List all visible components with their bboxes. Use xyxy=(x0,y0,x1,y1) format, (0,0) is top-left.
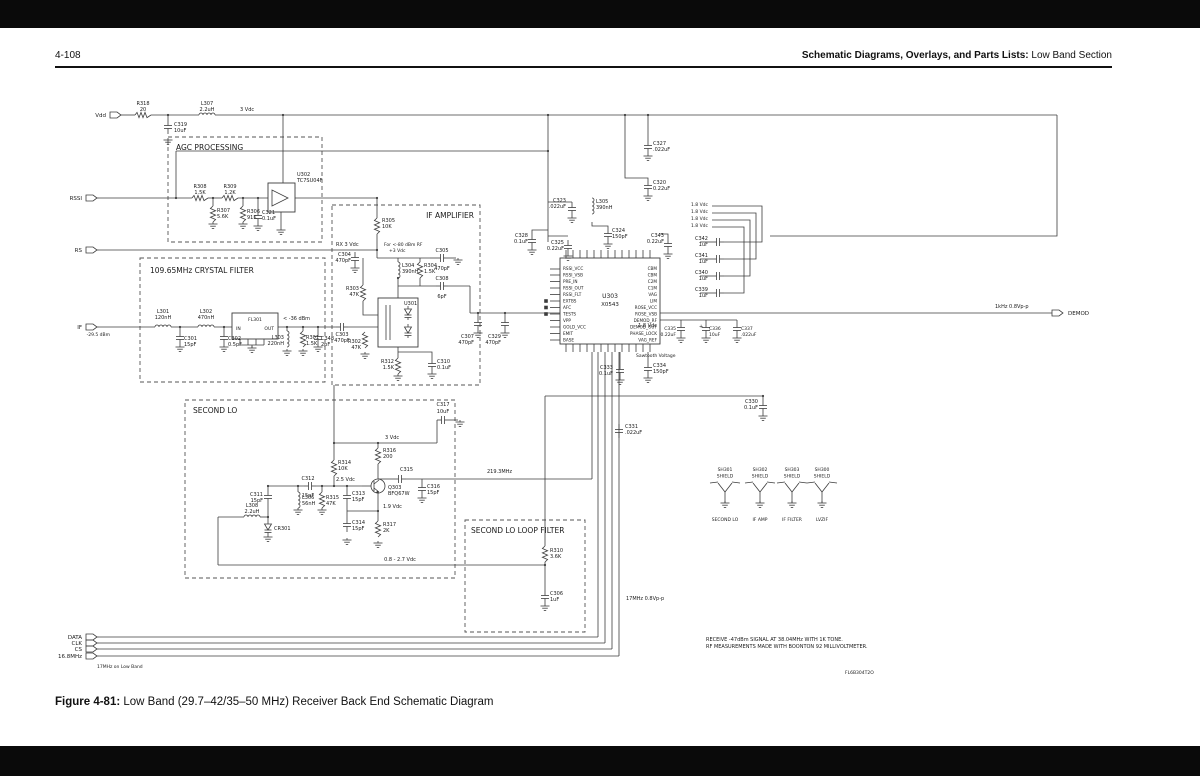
schematic-label: 47K xyxy=(349,292,359,298)
schematic-label: SHIELD xyxy=(814,474,831,480)
schematic-label: 0.1uF xyxy=(437,365,451,371)
schematic-label: 120nH xyxy=(155,315,172,321)
shield-symbols: SH301SHIELDSECOND LOSH302SHIELDIF AMPSH3… xyxy=(710,467,837,523)
schematic-label: IF AMPLIFIER xyxy=(426,211,474,220)
schematic-label: SHIELD xyxy=(784,474,801,480)
schematic-label: 1.8 Vdc xyxy=(638,323,657,329)
schematic-label: PRE_IN xyxy=(563,279,578,284)
schematic-label: 16.8MHz xyxy=(58,654,82,660)
drawing-code: FL6B304T2O xyxy=(845,670,874,676)
schematic-label: EXTBS xyxy=(563,299,577,304)
schematic-label: C336 xyxy=(709,326,721,332)
schematic-label: SHIELD xyxy=(717,474,734,480)
schematic-label: C315 xyxy=(400,467,413,473)
schematic-label: 1uF xyxy=(699,259,708,265)
schematic-label: 470pF xyxy=(434,266,450,272)
schematic-label: 17MHz 0.8Vp-p xyxy=(626,596,664,602)
schematic-label: 109.65MHz CRYSTAL FILTER xyxy=(150,266,254,275)
ic-u303: RSSI_VCCRSSI_VSBPRE_INRSSI_OUTRSSI_FLTEX… xyxy=(560,250,660,352)
schematic-label: CS xyxy=(75,647,83,653)
schematic-label: SH302 xyxy=(753,467,768,473)
figure-caption-number: Figure 4-81: xyxy=(55,696,120,708)
schematic-label: AFC xyxy=(563,305,571,310)
figure-caption: Figure 4-81: Low Band (29.7–42/35–50 MHz… xyxy=(55,696,493,708)
schematic-label: 2.2uH xyxy=(200,107,215,113)
schematic-label: IF FILTER xyxy=(782,517,802,523)
schematic-label: .022uF xyxy=(741,332,757,338)
schematic-label: RSSI xyxy=(70,196,83,202)
schematic-label: 390nH xyxy=(596,205,613,211)
schematic-label: C308 xyxy=(435,276,448,282)
schematic-label: C337 xyxy=(741,326,753,332)
schematic-label: SH301 xyxy=(718,467,733,473)
schematic-label: 10uF xyxy=(709,332,721,338)
schematic-label: FL301 xyxy=(248,317,262,323)
schematic-label: .022uF xyxy=(653,147,670,153)
blocks: AGC PROCESSINGIF AMPLIFIER109.65MHz CRYS… xyxy=(140,137,585,632)
schematic-label: VAG xyxy=(648,292,657,297)
schematic-label: 470pF xyxy=(335,258,351,264)
schematic-label: 15pF xyxy=(352,497,365,503)
schematic-label: RSSI_OUT xyxy=(563,286,584,291)
schematic-label: Vdd xyxy=(95,113,106,119)
schematic-label: 2.5 Vdc xyxy=(336,477,355,483)
schematic-label: C335 xyxy=(664,326,676,332)
schematic-label: 17MHz on Low Band xyxy=(97,664,143,670)
wires xyxy=(99,115,1057,656)
schematic-label: 47K xyxy=(351,345,361,351)
schematic-label: BASE xyxy=(563,338,574,343)
schematic-label: .022uF xyxy=(625,430,642,436)
schematic-label: +3 Vdc xyxy=(389,248,406,254)
schematic-label: 0.8 - 2.7 Vdc xyxy=(384,557,416,563)
schematic-label: C317 xyxy=(436,402,449,408)
schematic-label: 219.3MHz xyxy=(487,469,512,475)
schematic-label: 2K xyxy=(383,528,390,534)
schematic-label: X0543 xyxy=(601,302,619,308)
schematic-label: 0.1uF xyxy=(744,405,758,411)
schematic-label: RX 3 Vdc xyxy=(336,242,359,248)
schematic-label: 1uF xyxy=(699,276,708,282)
schematic-label: 15pF xyxy=(184,342,197,348)
schematic-label: U301 xyxy=(404,301,417,307)
schematic-label: 10K xyxy=(338,466,348,472)
schematic-label: IF xyxy=(77,325,82,331)
schematic-label: 6pF xyxy=(437,294,446,300)
schematic-label: 200 xyxy=(383,454,393,460)
schematic-label: RS xyxy=(75,248,83,254)
schematic-label: RSSI_VSB xyxy=(563,273,583,278)
schematic-label: 470pF xyxy=(485,340,501,346)
schematic-label: C2M xyxy=(648,279,658,284)
schematic-label: SH303 xyxy=(785,467,800,473)
schematic-label: 470pF xyxy=(458,340,474,346)
schematic-label: 470nH xyxy=(198,315,215,321)
note-line: RF MEASUREMENTS MADE WITH BOONTON 92 MIL… xyxy=(706,644,868,650)
schematic-label: SECOND LO xyxy=(712,517,739,523)
manual-page: 4-108 Schematic Diagrams, Overlays, and … xyxy=(0,0,1200,776)
schematic-label: 1uF xyxy=(699,293,708,299)
schematic-label: 1.8 Vdc xyxy=(691,202,709,208)
schematic-label: 1.5K xyxy=(194,190,206,196)
schematic-label: CR301 xyxy=(274,526,291,532)
schematic-label: RSSI_FLT xyxy=(563,292,582,297)
schematic-label: Sawtooth Voltage xyxy=(636,353,676,359)
schematic-label: 2pF xyxy=(321,342,330,348)
schematic-label: 0.22uF xyxy=(653,186,670,192)
schematic-label: 10uF xyxy=(174,128,187,134)
schematic-label: IN xyxy=(236,326,241,332)
schematic-label: SH300 xyxy=(815,467,830,473)
schematic-label: 15pF xyxy=(427,490,440,496)
schematic-label: 150pF xyxy=(612,234,628,240)
connectors: VddRSSIRSIF-29.5 dBmDATACLKCS16.8MHzDEMO… xyxy=(58,112,1089,660)
schematic-label: For <-80 dBm RF xyxy=(384,242,423,248)
schematic-label: OUT xyxy=(264,326,274,332)
schematic-label: 3 Vdc xyxy=(240,107,254,113)
schematic-label: 1uF xyxy=(699,242,708,248)
schematic-label: BFQ67W xyxy=(388,491,410,497)
schematic-label: LVZIF xyxy=(816,517,829,523)
labels: R31820L3072.2uH3 VdcC31910uFR3081.5KR309… xyxy=(97,101,1029,670)
schematic-label: VPP xyxy=(563,318,571,323)
notes: RECEIVE -47dBm SIGNAL AT 38.04MHz WITH 1… xyxy=(706,637,874,676)
schematic-label: 1.9 Vdc xyxy=(383,504,402,510)
schematic-label: 3 Vdc xyxy=(385,435,399,441)
schematic-label: C1M xyxy=(648,286,658,291)
schematic-label: 47K xyxy=(326,501,336,507)
schematic-label: 56nH xyxy=(302,501,316,507)
schematic-label: C312 xyxy=(301,476,314,482)
block-outline xyxy=(465,520,585,632)
schematic-label: 1.8 Vdc xyxy=(691,216,709,222)
schematic-label: 20 xyxy=(140,107,146,113)
schematic-label: 10uF xyxy=(437,409,450,415)
schematic-label: VAG_REF xyxy=(638,338,657,343)
schematic-label: 0.1uF xyxy=(599,371,613,377)
schematic-label: 91K xyxy=(247,215,257,221)
schematic-label: PHASE_LOCK xyxy=(630,331,657,336)
schematic-label: U303 xyxy=(602,293,618,300)
schematic-label: 0.1uF xyxy=(262,216,276,222)
schematic-label: IF AMP xyxy=(752,517,767,523)
schematic-label: 1.8 Vdc xyxy=(691,209,709,215)
schematic-label: 1.5K xyxy=(306,341,318,347)
note-line: RECEIVE -47dBm SIGNAL AT 38.04MHz WITH 1… xyxy=(706,637,843,643)
schematic-label: 2.2uH xyxy=(245,509,260,515)
schematic-label: 0.1uF xyxy=(514,239,528,245)
schematic-label: DEMOD xyxy=(1068,311,1089,317)
schematic-label: CBM xyxy=(648,273,658,278)
schematic-label: SECOND LO LOOP FILTER xyxy=(471,526,564,535)
schematic-label: < -36 dBm xyxy=(283,316,310,322)
schematic-label: 1uF xyxy=(550,597,559,603)
schematic-label: SHIELD xyxy=(752,474,769,480)
schematic-label: 220nH xyxy=(268,341,285,347)
schematic-label: TESTS xyxy=(562,312,576,317)
block-outline xyxy=(185,400,455,578)
schematic-label: C305 xyxy=(435,248,448,254)
schematic-label: 0.22uF xyxy=(661,332,677,338)
schematic-label: + xyxy=(699,324,703,330)
schematic-label: 1.5K xyxy=(383,365,395,371)
schematic-label: RSSI_VCC xyxy=(563,266,583,271)
schematic-label: LIM xyxy=(650,299,658,304)
schematic-label: GOLD_VCC xyxy=(563,325,586,330)
schematic-label: 15pF xyxy=(352,526,365,532)
schematic-label: 1.8 Vdc xyxy=(691,223,709,229)
schematic-label: -29.5 dBm xyxy=(87,332,110,338)
schematic-label: 390nH xyxy=(402,269,419,275)
schematic-label: 10K xyxy=(382,224,392,230)
schematic-label: 5.6K xyxy=(217,214,229,220)
schematic-label: 0.5pF xyxy=(228,342,242,348)
schematic-label: 150pF xyxy=(653,369,669,375)
schematic-label: CBM xyxy=(648,266,658,271)
figure-caption-text: Low Band (29.7–42/35–50 MHz) Receiver Ba… xyxy=(120,696,493,708)
schematic-label: 1.2K xyxy=(224,190,236,196)
schematic-label: .022uF xyxy=(549,204,566,210)
schematic-label: EMIT xyxy=(563,331,573,336)
schematic-label: 0.22uF xyxy=(547,246,564,252)
schematic-svg: AGC PROCESSINGIF AMPLIFIER109.65MHz CRYS… xyxy=(0,0,1200,776)
schematic-label: ROSE_VCC xyxy=(635,305,657,310)
schematic-label: SECOND LO xyxy=(193,406,237,415)
schematic-label: 1kHz 0.8Vp-p xyxy=(995,304,1029,310)
schematic-label: 3.6K xyxy=(550,554,562,560)
schematic-label: 0.22uF xyxy=(647,239,664,245)
schematic-label: ROSE_VSB xyxy=(635,312,657,317)
schematic-label: TC7SU04F xyxy=(296,178,323,184)
